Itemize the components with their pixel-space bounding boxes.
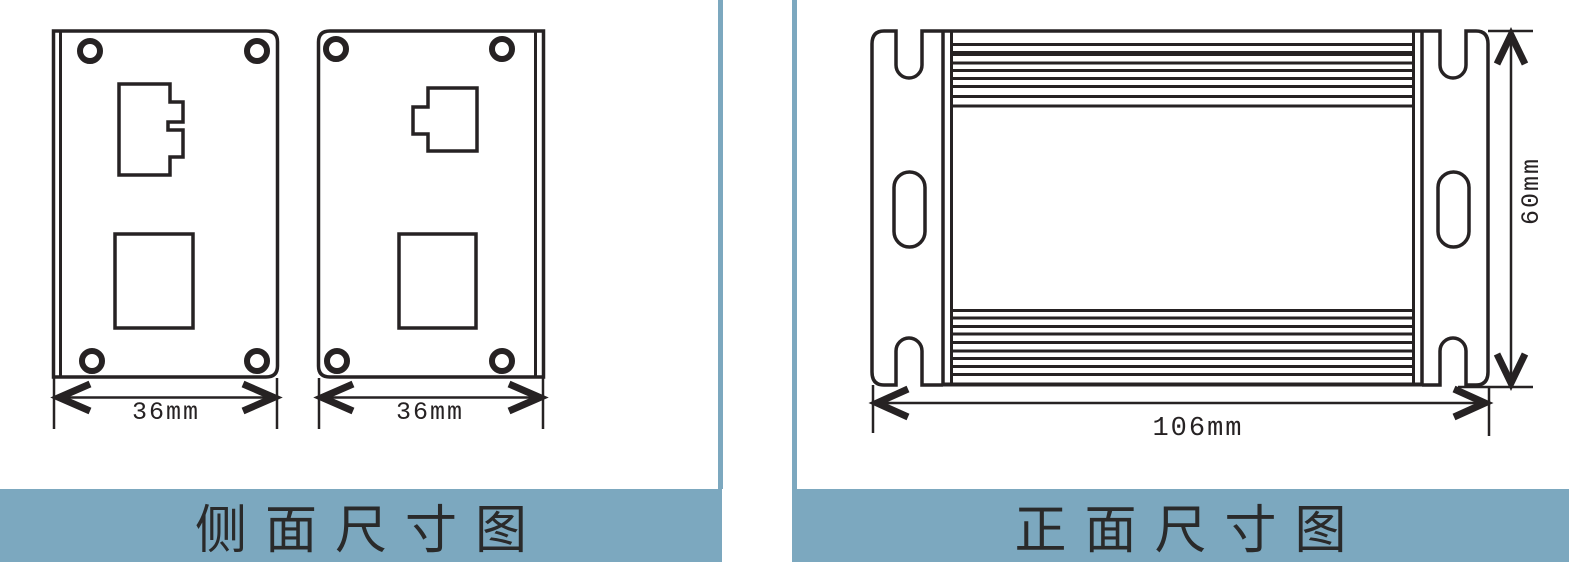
dimension-label-front-height: 60mm (1519, 146, 1545, 236)
section-divider-line-left (718, 0, 723, 489)
screw-hole (492, 39, 512, 59)
dimension-drawing-page: 36mm 36mm 106mm 60mm 侧面尺寸图 正面尺寸图 (0, 0, 1569, 562)
dimension-label-front-width: 106mm (1118, 416, 1278, 442)
side-panel-outline (319, 31, 544, 377)
screw-hole (326, 39, 346, 59)
rj45-port-cutout (413, 88, 477, 151)
mounting-ear-left (872, 31, 943, 385)
mounting-slot-right (1438, 172, 1469, 247)
screw-hole (492, 351, 512, 371)
heatsink-fins-bottom (953, 311, 1413, 375)
screw-hole (327, 351, 347, 371)
side-view-a (54, 31, 278, 429)
caption-side-views: 侧面尺寸图 (177, 488, 545, 562)
side-view-b (319, 31, 544, 429)
caption-bar-front-view: 正面尺寸图 (792, 489, 1569, 562)
screw-hole (247, 41, 267, 61)
dimension-label-side-a-width: 36mm (106, 400, 226, 426)
section-divider-line-right (792, 0, 797, 489)
mounting-slot-left (894, 172, 925, 247)
screw-hole (247, 351, 267, 371)
front-view (872, 31, 1533, 436)
screw-hole (82, 351, 102, 371)
rj45-port-cutout (119, 84, 183, 175)
caption-front-view: 正面尺寸图 (996, 488, 1364, 562)
body-outline (943, 31, 1422, 385)
caption-bar-side-views: 侧面尺寸图 (0, 489, 722, 562)
square-port-cutout (399, 234, 476, 328)
mounting-ear-right (1422, 31, 1488, 385)
dimension-label-side-b-width: 36mm (370, 400, 490, 426)
square-port-cutout (115, 234, 193, 328)
screw-hole (80, 41, 100, 61)
heatsink-fins-top (953, 45, 1413, 107)
